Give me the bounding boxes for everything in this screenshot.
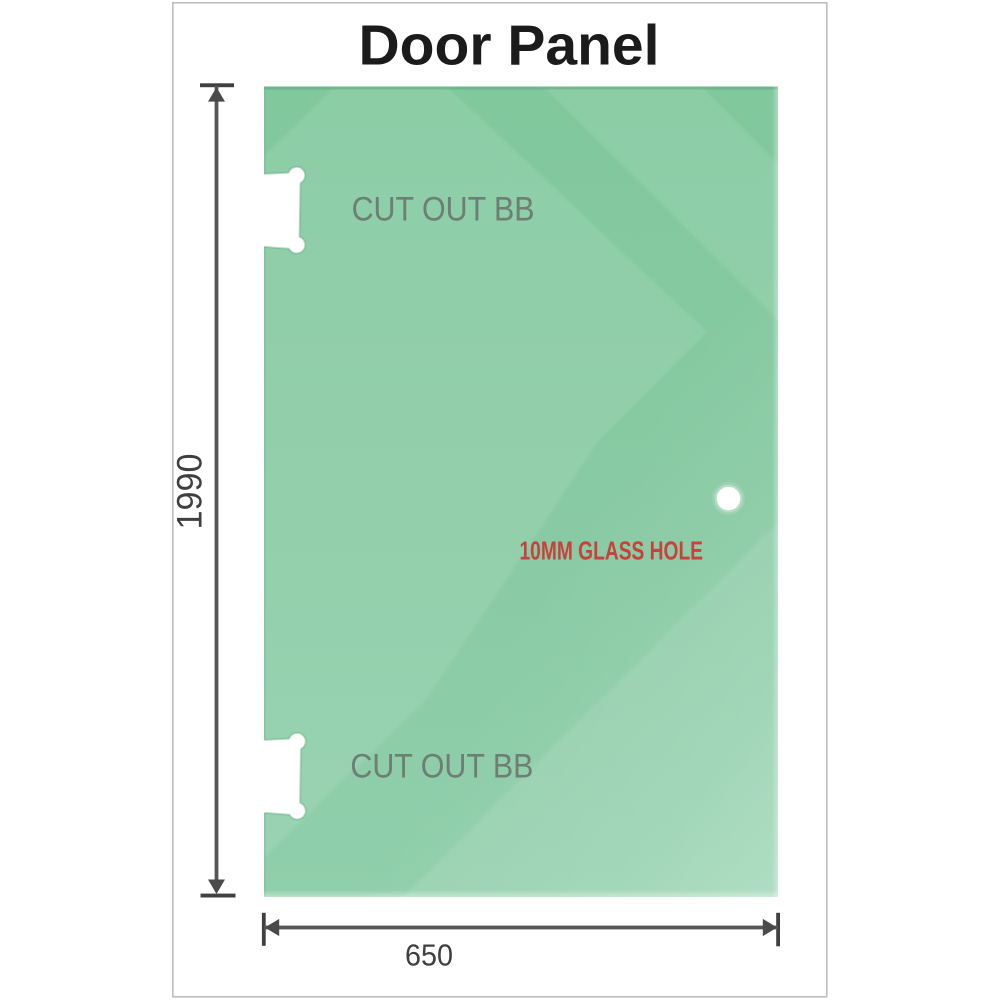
svg-text:1990: 1990: [171, 454, 210, 530]
svg-text:CUT OUT BB: CUT OUT BB: [350, 748, 533, 786]
svg-text:Door Panel: Door Panel: [359, 14, 660, 77]
svg-text:650: 650: [405, 938, 453, 973]
svg-text:CUT OUT BB: CUT OUT BB: [352, 191, 535, 229]
svg-text:10MM GLASS HOLE: 10MM GLASS HOLE: [520, 535, 704, 565]
